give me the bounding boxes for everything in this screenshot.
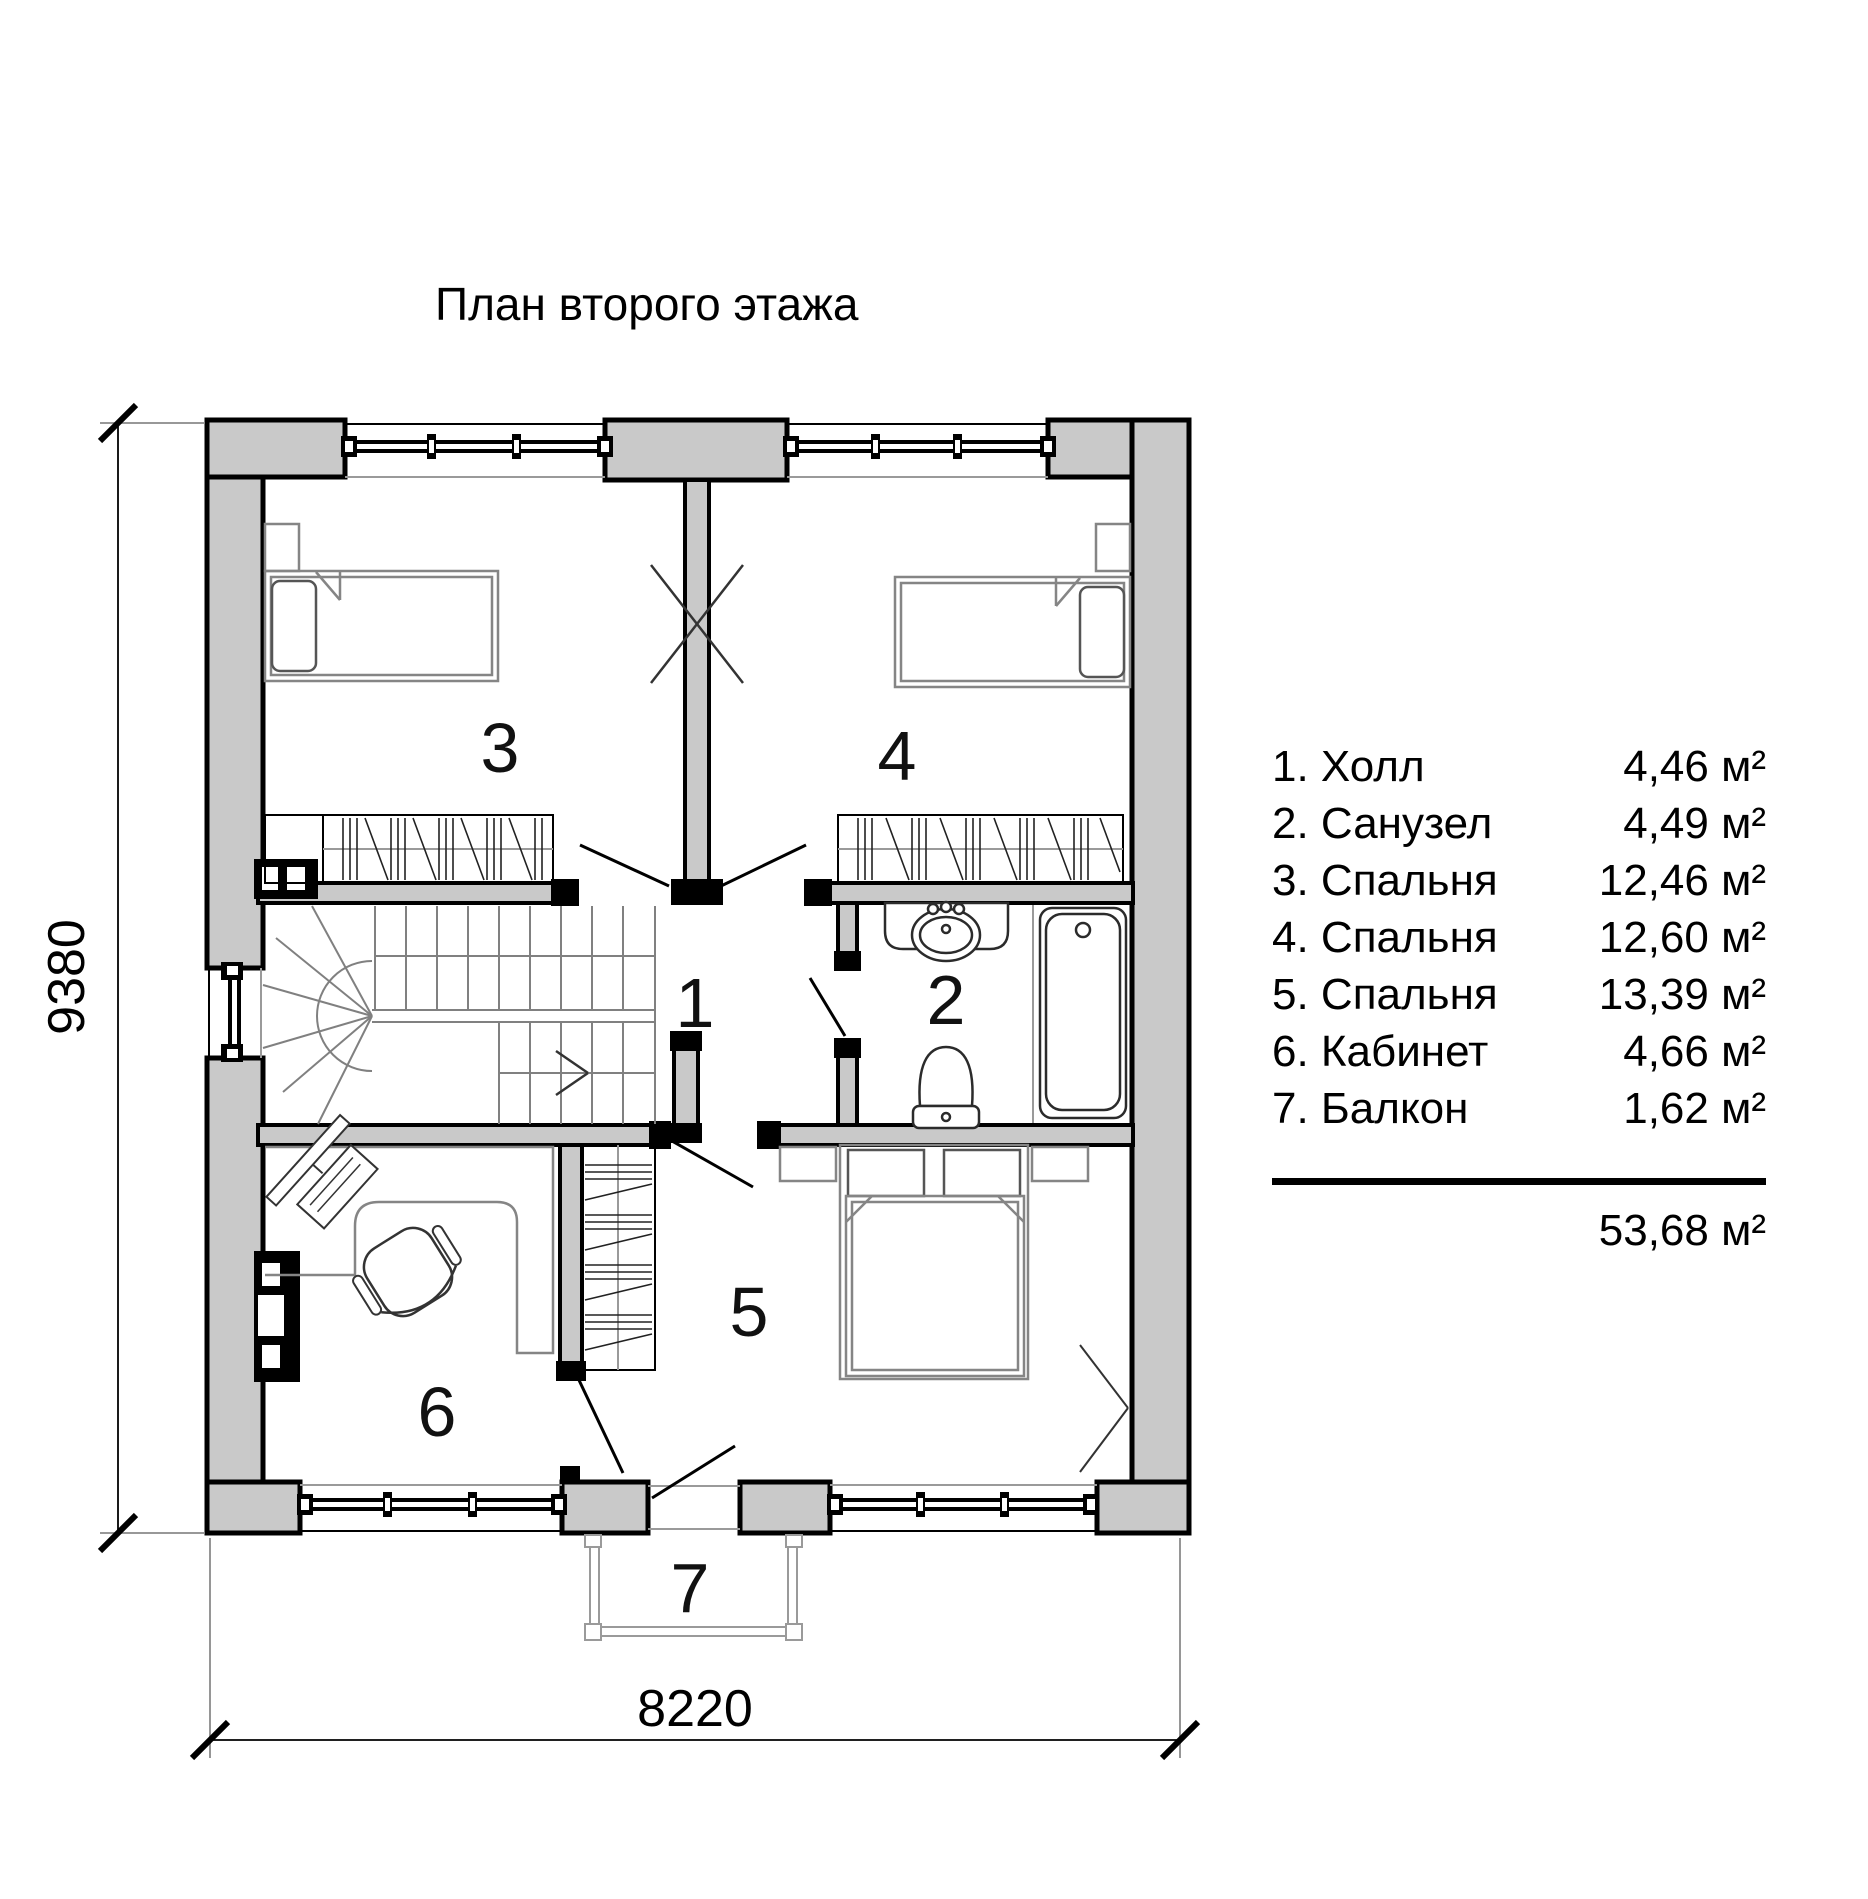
legend-row: 4. Спальня 12,60 м²: [1272, 913, 1766, 962]
door-bedroom-5: [672, 1141, 753, 1187]
staircase: [263, 906, 655, 1124]
room-label-bathroom: 2: [927, 961, 966, 1039]
pillow: [848, 1150, 924, 1196]
legend-area: 1,62 м²: [1623, 1084, 1766, 1133]
legend-row: 6. Кабинет 4,66 м²: [1272, 1027, 1766, 1076]
legend-area: 12,46 м²: [1599, 856, 1766, 905]
legend-row: 1. Холл 4,46 м²: [1272, 742, 1766, 791]
legend-row: 3. Спальня 12,46 м²: [1272, 856, 1766, 905]
legend-label: 5. Спальня: [1272, 970, 1498, 1019]
legend: 1. Холл 4,46 м² 2. Санузел 4,49 м² 3. Сп…: [1272, 742, 1766, 1255]
room-label-bedroom-5: 5: [730, 1273, 769, 1351]
pillow: [944, 1150, 1020, 1196]
floor-plan-page: План второго этажа: [0, 0, 1868, 1899]
legend-area: 4,46 м²: [1623, 742, 1766, 791]
legend-label: 3. Спальня: [1272, 856, 1498, 905]
bathroom-fixtures: [885, 902, 1126, 1128]
bed-bedroom-5: [780, 1145, 1088, 1379]
room-label-hall: 1: [676, 964, 715, 1042]
legend-area: 13,39 м²: [1599, 970, 1766, 1019]
door-hinge-nub: [560, 1466, 580, 1482]
legend-row: 5. Спальня 13,39 м²: [1272, 970, 1766, 1019]
office-chair: [344, 1212, 472, 1332]
door-bathroom: [810, 978, 845, 1036]
dimension-left: 9380: [38, 405, 205, 1551]
floor-plan-drawing: План второго этажа: [0, 0, 1868, 1899]
nightstand: [265, 524, 299, 571]
door-bedroom-4: [721, 845, 806, 886]
chimney-lower: [254, 1251, 300, 1382]
dimension-width: 8220: [637, 1680, 753, 1738]
door-balcony: [652, 1446, 735, 1498]
wardrobe-bedroom-5: [582, 1145, 655, 1370]
legend-row: 2. Санузел 4,49 м²: [1272, 799, 1766, 848]
window-niche-mark: [1080, 1345, 1128, 1472]
legend-row: 7. Балкон 1,62 м²: [1272, 1084, 1766, 1133]
dimension-height: 9380: [38, 919, 96, 1035]
legend-label: 2. Санузел: [1272, 799, 1492, 848]
nightstand: [780, 1147, 836, 1181]
room-label-bedroom-3: 3: [481, 709, 520, 787]
room-label-bedroom-4: 4: [878, 717, 917, 795]
bathtub: [1040, 908, 1126, 1118]
plan-title: План второго этажа: [435, 278, 859, 330]
wardrobe-bedroom-4: [838, 815, 1123, 883]
legend-label: 4. Спальня: [1272, 913, 1498, 962]
legend-label: 1. Холл: [1272, 742, 1425, 791]
bed-bedroom-4: [895, 524, 1130, 687]
legend-area: 12,60 м²: [1599, 913, 1766, 962]
legend-label: 7. Балкон: [1272, 1084, 1468, 1133]
door-office: [578, 1378, 623, 1473]
toilet: [913, 1047, 979, 1128]
legend-area: 4,66 м²: [1623, 1027, 1766, 1076]
door-bedroom-3: [580, 845, 669, 886]
room-label-balcony: 7: [671, 1549, 710, 1627]
nightstand: [1032, 1147, 1088, 1181]
legend-total: 53,68 м²: [1599, 1206, 1766, 1255]
legend-label: 6. Кабинет: [1272, 1027, 1488, 1076]
bed-bedroom-3: [265, 524, 498, 681]
nightstand: [1096, 524, 1130, 571]
legend-area: 4,49 м²: [1623, 799, 1766, 848]
legend-separator: [1272, 1178, 1766, 1185]
chimney-upper: [254, 859, 318, 899]
room-label-office: 6: [418, 1373, 457, 1451]
